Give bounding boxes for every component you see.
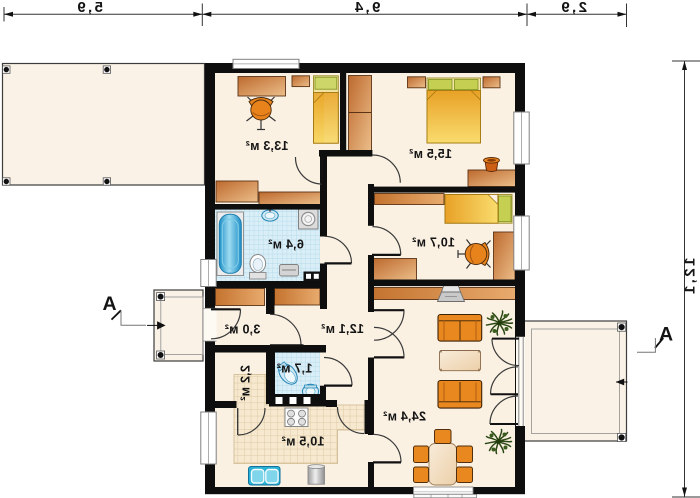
svg-text:13,3 м²: 13,3 м² [246,139,289,153]
svg-text:5,9: 5,9 [75,0,103,16]
svg-text:12,1 м²: 12,1 м² [321,322,364,336]
svg-text:10,7 м²: 10,7 м² [412,236,455,250]
svg-text:9,4: 9,4 [352,0,380,16]
svg-text:3,0 м²: 3,0 м² [225,323,261,337]
svg-text:24,4 м²: 24,4 м² [383,410,426,424]
svg-text:12,1: 12,1 [682,258,699,297]
svg-text:1,7 м²: 1,7 м² [277,362,313,376]
svg-text:6,4 м²: 6,4 м² [268,238,304,252]
svg-text:A: A [103,293,117,315]
svg-text:A: A [659,324,673,346]
svg-text:15,5 м²: 15,5 м² [409,147,452,161]
svg-text:2,2 м²: 2,2 м² [239,365,253,401]
svg-text:10,5 м²: 10,5 м² [282,435,325,449]
svg-text:2,9: 2,9 [559,0,587,16]
